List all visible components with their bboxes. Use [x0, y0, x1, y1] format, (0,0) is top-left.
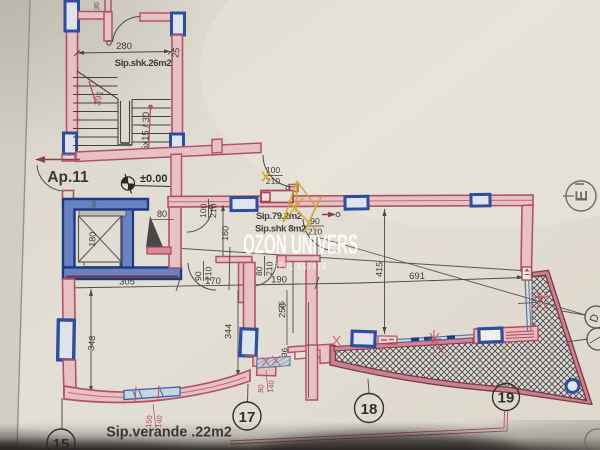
svg-text:Sip.shk.26m2: Sip.shk.26m2	[115, 58, 172, 69]
svg-text:140: 140	[266, 380, 276, 393]
svg-text:Sip.79.2m2: Sip.79.2m2	[256, 211, 302, 222]
svg-text:19: 19	[498, 390, 515, 407]
svg-text:691: 691	[409, 271, 425, 282]
svg-text:25: 25	[277, 300, 286, 310]
svg-text:90: 90	[91, 200, 98, 208]
svg-text:OZON UNIVERS: OZON UNIVERS	[243, 229, 358, 260]
svg-text:348: 348	[86, 335, 97, 351]
svg-text:80: 80	[256, 384, 266, 393]
svg-text:REAL ESTATE: REAL ESTATE	[274, 260, 328, 272]
svg-text:305: 305	[119, 277, 135, 288]
svg-text:E: E	[572, 190, 591, 201]
svg-text:210: 210	[208, 203, 218, 218]
svg-text:5x15 / 30: 5x15 / 30	[140, 112, 152, 151]
svg-text:280: 280	[116, 41, 132, 52]
svg-text:80: 80	[157, 209, 167, 219]
svg-text:170: 170	[205, 276, 221, 287]
svg-text:30: 30	[94, 2, 101, 10]
svg-text:180: 180	[87, 232, 98, 248]
svg-text:415: 415	[374, 262, 385, 277]
svg-text:90: 90	[193, 271, 203, 281]
svg-text:±0.00: ±0.00	[140, 173, 167, 185]
svg-text:18: 18	[361, 401, 378, 418]
svg-text:25: 25	[170, 47, 182, 59]
svg-text:Ap.11: Ap.11	[47, 169, 89, 186]
svg-text:100: 100	[198, 203, 208, 218]
svg-text:344: 344	[223, 324, 234, 339]
svg-text:190: 190	[271, 275, 287, 286]
svg-text:210: 210	[266, 176, 280, 186]
svg-text:160: 160	[220, 226, 231, 241]
